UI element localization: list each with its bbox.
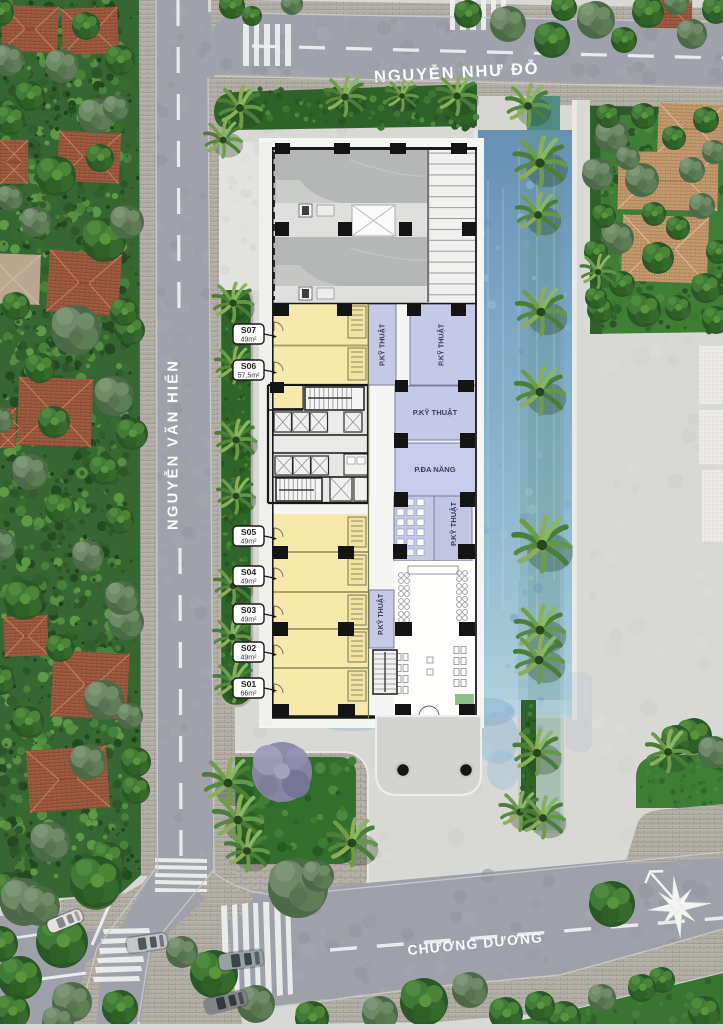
- svg-text:S01: S01: [241, 679, 257, 689]
- svg-text:49m²: 49m²: [241, 539, 258, 546]
- svg-text:49m²: 49m²: [241, 617, 258, 624]
- svg-text:P.KỸ THUẬT: P.KỸ THUẬT: [376, 593, 385, 635]
- svg-text:57,5m²: 57,5m²: [238, 373, 260, 380]
- svg-text:49m²: 49m²: [241, 655, 258, 662]
- svg-text:P.KỸ THUẬT: P.KỸ THUẬT: [437, 323, 446, 366]
- svg-text:49m²: 49m²: [241, 579, 258, 586]
- svg-text:49m²: 49m²: [241, 337, 258, 344]
- svg-text:S07: S07: [241, 325, 257, 335]
- svg-text:P.KỸ THUẬT: P.KỸ THUẬT: [413, 408, 458, 417]
- svg-text:S03: S03: [241, 605, 257, 615]
- svg-text:66m²: 66m²: [241, 691, 258, 698]
- svg-text:S06: S06: [241, 361, 257, 371]
- svg-text:S02: S02: [241, 643, 257, 653]
- svg-text:NGUYỄN VĂN HIỂN: NGUYỄN VĂN HIỂN: [164, 359, 182, 530]
- svg-text:P.KỸ THUẬT: P.KỸ THUẬT: [449, 502, 458, 546]
- svg-text:P.KỸ THUẬT: P.KỸ THUẬT: [378, 323, 387, 366]
- svg-text:S04: S04: [241, 567, 257, 577]
- svg-text:S05: S05: [241, 527, 257, 537]
- svg-text:P.ĐA NĂNG: P.ĐA NĂNG: [414, 465, 455, 474]
